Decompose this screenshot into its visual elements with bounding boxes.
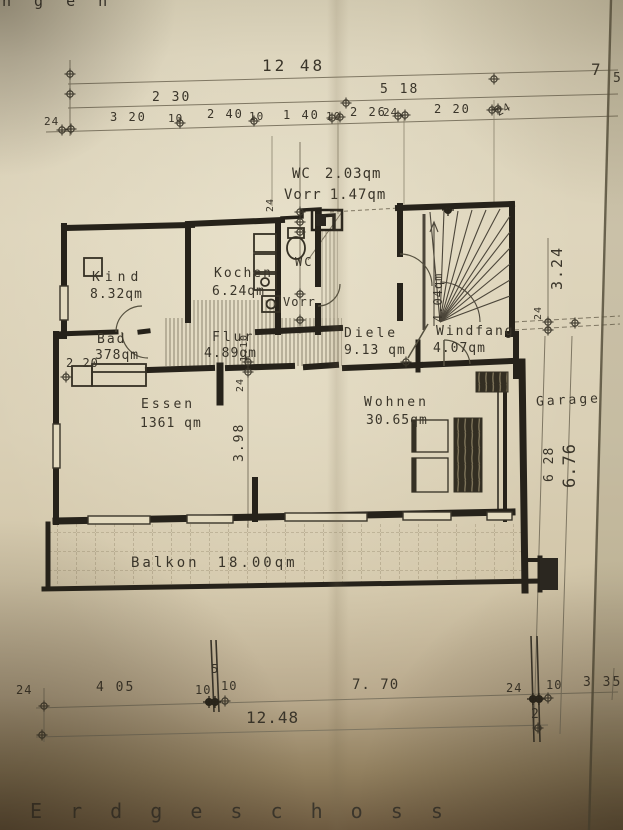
dim-3-24: 3.24 bbox=[550, 246, 565, 290]
plan-title: E r d g e s c h o s s bbox=[30, 801, 451, 821]
dim-6-28: 6 28 bbox=[543, 447, 556, 482]
dim-2-30: 2 30 bbox=[152, 91, 191, 104]
dim-2-40: 2 40 bbox=[207, 108, 244, 120]
dim-10-bottom-c: 10 bbox=[546, 679, 562, 691]
dim-7-70: 7. 70 bbox=[352, 678, 399, 692]
dim-24-wc: 24 bbox=[266, 198, 276, 212]
dim-2-20: 2 20 bbox=[434, 103, 471, 115]
room-label-kind: Kind bbox=[92, 271, 143, 284]
room-area-wohnen: 30.65qm bbox=[366, 414, 428, 427]
dim-top-total: 12 48 bbox=[262, 58, 325, 74]
dim-5-right: 5 bbox=[613, 72, 622, 85]
room-label-garage: Garage bbox=[536, 392, 602, 408]
room-area-windfang: 4.07qm bbox=[433, 342, 486, 355]
dim-7: 7 bbox=[591, 62, 602, 78]
stair-area-label: 4.04qm bbox=[432, 273, 444, 322]
dim-2-20-bad: 2 20 bbox=[66, 357, 99, 369]
dim-2-bottom: 2 bbox=[531, 708, 540, 721]
corner-text: n g e n bbox=[2, 0, 114, 9]
dim-24-bottom-right: 24 bbox=[506, 682, 522, 694]
dim-10-a: 10 bbox=[168, 113, 183, 124]
dim-2-26: 2 26 bbox=[350, 106, 387, 118]
wc-note-label: WC2.03qm bbox=[292, 167, 381, 181]
dim-10-c: 10 bbox=[326, 111, 341, 122]
dim-24-bottom-left: 24 bbox=[16, 684, 32, 696]
dim-6-76: 6.76 bbox=[562, 443, 579, 488]
room-label-bad: Bad bbox=[97, 333, 126, 346]
dim-5-bottom: 5 bbox=[211, 663, 219, 675]
room-label-kochen: Kochen bbox=[214, 267, 273, 280]
dimension-lines bbox=[36, 60, 620, 742]
dim-3-20: 3 20 bbox=[110, 111, 147, 123]
dim-24-right: 24 bbox=[534, 306, 544, 320]
dim-24-mid: 24 bbox=[236, 378, 246, 392]
paper-edge bbox=[589, 0, 623, 830]
dim-3-35: 3 35 bbox=[583, 676, 622, 689]
dim-3-98: 3.98 bbox=[233, 423, 246, 462]
plan-drawing bbox=[0, 0, 623, 830]
room-area-essen: 1361 qm bbox=[140, 417, 202, 430]
room-area-kind: 8.32qm bbox=[90, 288, 143, 301]
dim-4-05: 4 05 bbox=[96, 681, 135, 694]
room-label-essen: Essen bbox=[141, 398, 195, 411]
room-label-diele: Diele bbox=[344, 327, 398, 340]
floor-plan-photo: { "photo": { "corner_text": "n g e n", "… bbox=[0, 0, 623, 830]
dim-24-b: 24 bbox=[383, 107, 398, 118]
dim-10-bottom-a: 10 bbox=[195, 684, 211, 696]
dim-1-10: 1.10 bbox=[240, 334, 250, 362]
room-label-balkon: Balkon18.00qm bbox=[131, 556, 298, 570]
room-label-vorr: Vorr bbox=[283, 296, 316, 308]
dim-10-bottom-b: 10 bbox=[221, 680, 237, 692]
room-area-diele: 9.13 qm bbox=[344, 344, 406, 357]
room-label-windfang: Windfang bbox=[436, 325, 515, 338]
dim-10-b: 10 bbox=[249, 111, 264, 122]
room-label-wc: WC bbox=[295, 256, 313, 268]
dim-bottom-total: 12.48 bbox=[246, 710, 299, 726]
dim-1-40: 1 40 bbox=[283, 109, 320, 121]
room-area-bad: 378qm bbox=[95, 349, 139, 362]
dim-5-18: 5 18 bbox=[380, 83, 419, 96]
vorr-note-label: Vorr1.47qm bbox=[284, 188, 386, 202]
room-label-wohnen: Wohnen bbox=[364, 396, 429, 409]
dim-24-left: 24 bbox=[44, 116, 59, 127]
room-area-kochen: 6.24qm bbox=[212, 285, 265, 298]
